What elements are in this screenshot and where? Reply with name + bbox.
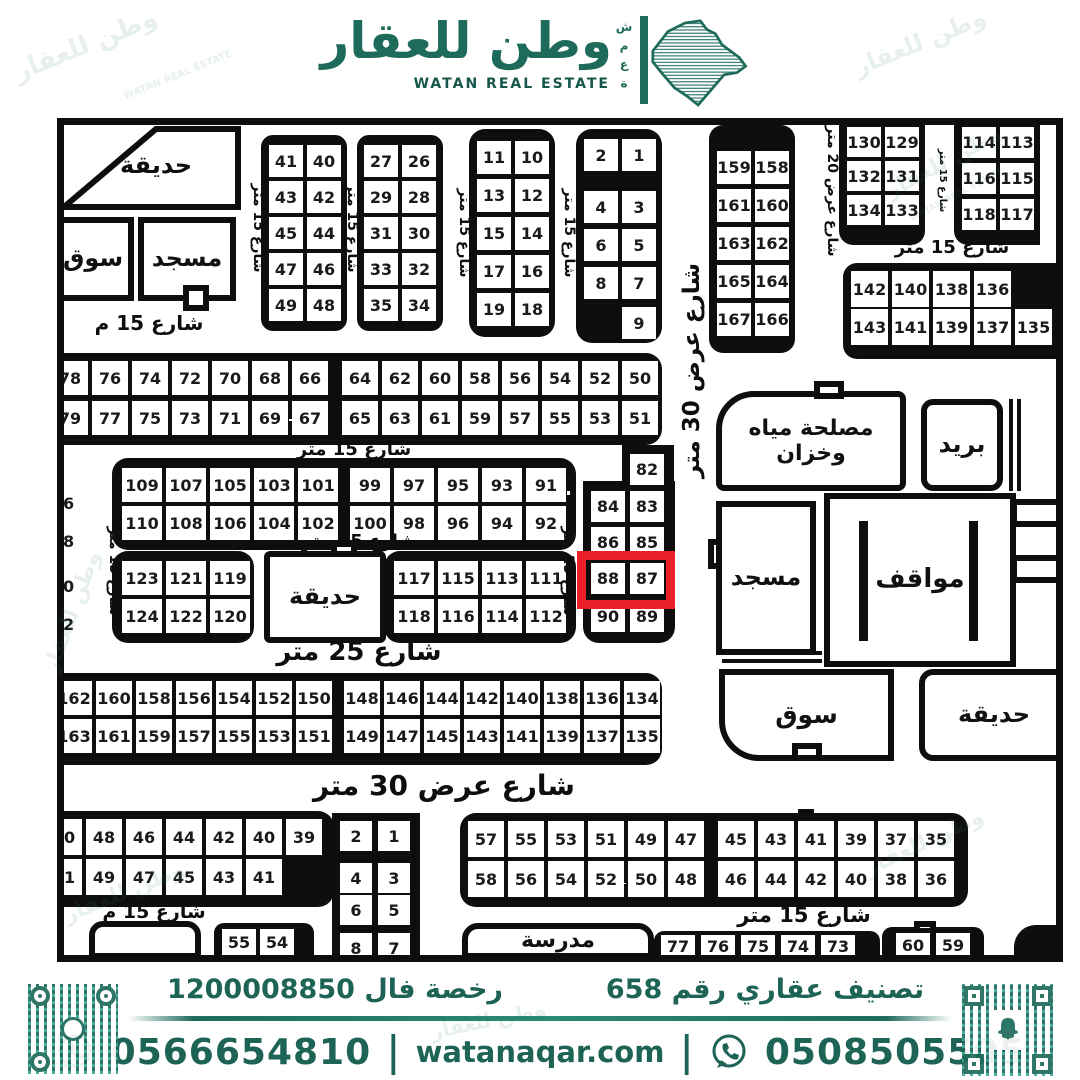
- plot-118[interactable]: 118: [394, 599, 434, 633]
- plot-44[interactable]: 44: [758, 861, 794, 897]
- plot-62[interactable]: 62: [382, 361, 418, 395]
- plot-61[interactable]: 61: [422, 401, 458, 435]
- plot-41[interactable]: 41: [246, 859, 282, 895]
- street-label: شارع 15 متر: [250, 148, 266, 308]
- plot-48[interactable]: 48: [668, 861, 704, 897]
- plot-158[interactable]: 158: [755, 151, 789, 184]
- plot-165[interactable]: 165: [717, 265, 751, 298]
- plot-47[interactable]: 47: [269, 253, 303, 285]
- qr-finder-icon: [964, 1054, 984, 1074]
- plot-40[interactable]: 40: [307, 145, 341, 177]
- market-block-topleft-label: سوق: [64, 245, 123, 273]
- plot-107[interactable]: 107: [166, 468, 206, 502]
- brand-letter: ة: [620, 74, 627, 93]
- plot-31[interactable]: 31: [364, 217, 398, 249]
- plot-52[interactable]: 52: [588, 861, 624, 897]
- plot-72[interactable]: 72: [172, 361, 208, 395]
- street-label: شارع 25 متر: [234, 637, 484, 667]
- plot-94[interactable]: 94: [482, 506, 522, 540]
- qr-finder-icon: [964, 986, 984, 1006]
- plot-155[interactable]: 155: [216, 719, 252, 753]
- plot-53[interactable]: 53: [548, 821, 584, 857]
- plot-40[interactable]: 40: [246, 819, 282, 855]
- street-label: شارع 15 متر: [456, 153, 472, 313]
- plot-13[interactable]: 13: [477, 179, 511, 212]
- plot-142[interactable]: 142: [851, 271, 888, 307]
- edge-fragment: [1011, 555, 1056, 583]
- plot-36[interactable]: 36: [918, 861, 954, 897]
- plot-49[interactable]: 49: [269, 289, 303, 321]
- plot-139[interactable]: 139: [933, 309, 970, 345]
- plot-12[interactable]: 12: [515, 179, 549, 212]
- plot-147[interactable]: 147: [384, 719, 420, 753]
- notch: [814, 381, 844, 399]
- plot-122[interactable]: 122: [166, 599, 206, 633]
- line-fragment: [722, 659, 822, 663]
- plot-70[interactable]: 70: [212, 361, 248, 395]
- plot-44[interactable]: 44: [166, 819, 202, 855]
- plot-93[interactable]: 93: [482, 468, 522, 502]
- plot-50[interactable]: 50: [622, 361, 658, 395]
- plot-32[interactable]: 32: [64, 609, 78, 639]
- plot-4[interactable]: 4: [340, 863, 372, 893]
- plot-153[interactable]: 153: [256, 719, 292, 753]
- plot-110[interactable]: 110: [122, 506, 162, 540]
- plot-74[interactable]: 74: [781, 935, 815, 955]
- plot-83[interactable]: 83: [630, 491, 664, 522]
- street-label: شارع 15 متر: [106, 491, 122, 651]
- plot-38[interactable]: 38: [878, 861, 914, 897]
- plot-116[interactable]: 116: [438, 599, 478, 633]
- plot-37[interactable]: 37: [878, 821, 914, 857]
- plot-140[interactable]: 140: [892, 271, 929, 307]
- street-label: شارع 15 متر: [937, 125, 948, 253]
- plot-54[interactable]: 54: [542, 361, 578, 395]
- plot-14[interactable]: 14: [515, 217, 549, 250]
- plot-121[interactable]: 121: [166, 561, 206, 595]
- plot-117[interactable]: 117: [394, 561, 434, 595]
- plot-29[interactable]: 29: [364, 181, 398, 213]
- street-label: شارع 15 متر: [704, 903, 904, 927]
- plot-144[interactable]: 144: [424, 681, 460, 715]
- water-utility-block-label: وخزان: [776, 441, 846, 466]
- plot-135[interactable]: 135: [624, 719, 660, 753]
- post-office-block-label: بريد: [939, 431, 986, 459]
- plot-108[interactable]: 108: [166, 506, 206, 540]
- plot-137[interactable]: 137: [584, 719, 620, 753]
- plot-46[interactable]: 46: [126, 819, 162, 855]
- plot-52[interactable]: 52: [582, 361, 618, 395]
- plot-54[interactable]: 54: [548, 861, 584, 897]
- plot-133[interactable]: 133: [885, 195, 919, 225]
- plot-32[interactable]: 32: [402, 253, 436, 285]
- whatsapp-icon: [709, 1032, 749, 1072]
- plot-130[interactable]: 130: [847, 127, 881, 157]
- plot-58[interactable]: 58: [468, 861, 504, 897]
- mosque-block-right-label: مسجد: [731, 564, 801, 592]
- plot-56[interactable]: 56: [502, 361, 538, 395]
- plot-141[interactable]: 141: [892, 309, 929, 345]
- plot-138[interactable]: 138: [544, 681, 580, 715]
- plot-42[interactable]: 42: [798, 861, 834, 897]
- qr-finder-icon: [30, 986, 50, 1006]
- plot-3[interactable]: 3: [378, 863, 410, 893]
- plot-49[interactable]: 49: [628, 821, 664, 857]
- notch: [183, 285, 209, 311]
- plot-75[interactable]: 75: [741, 935, 775, 955]
- plot-map: سوقمسجدمصلحة مياهوخزانبريدمسجدمواقفسوقحد…: [57, 118, 1063, 962]
- brand-name-arabic: وطن للعقار: [320, 14, 612, 69]
- footer-divider: [128, 1016, 952, 1021]
- plot-143[interactable]: 143: [464, 719, 500, 753]
- edge-fragment: [1011, 499, 1056, 527]
- garden-block-right-label: حديقة: [958, 701, 1030, 729]
- plot-113[interactable]: 113: [1000, 127, 1034, 158]
- plot-9[interactable]: 9: [622, 307, 656, 339]
- plot-8[interactable]: 8: [340, 933, 372, 955]
- plot-7[interactable]: 7: [378, 933, 410, 955]
- plot-19[interactable]: 19: [477, 293, 511, 326]
- qr-finder-icon: [1032, 986, 1052, 1006]
- plot-99[interactable]: 99: [350, 468, 390, 502]
- plot-149[interactable]: 149: [344, 719, 380, 753]
- plot-53[interactable]: 53: [582, 401, 618, 435]
- plot-33[interactable]: 33: [364, 253, 398, 285]
- plot-157[interactable]: 157: [176, 719, 212, 753]
- plot-2[interactable]: 2: [584, 139, 618, 171]
- plot-60[interactable]: 60: [896, 933, 930, 955]
- street-label: حديقة: [86, 151, 226, 179]
- street-label: شارع 15 متر: [852, 237, 1052, 258]
- plot-map-canvas: سوقمسجدمصلحة مياهوخزانبريدمسجدمواقفسوقحد…: [64, 125, 1056, 955]
- plot-117[interactable]: 117: [1000, 199, 1034, 230]
- street-label: شارع 15 متر: [561, 153, 577, 313]
- street-label: شارع عرض 30 متر: [224, 769, 664, 802]
- plot-76[interactable]: 76: [92, 361, 128, 395]
- plot-11[interactable]: 11: [477, 141, 511, 174]
- plot-28[interactable]: 28: [64, 526, 78, 556]
- brand-letter: ش: [616, 18, 633, 37]
- mosque-block-topleft-label: مسجد: [152, 245, 222, 273]
- plot-39[interactable]: 39: [838, 821, 874, 857]
- plot-58[interactable]: 58: [462, 361, 498, 395]
- plot-156[interactable]: 156: [176, 681, 212, 715]
- plot-26[interactable]: 26: [64, 488, 78, 518]
- plot-138[interactable]: 138: [933, 271, 970, 307]
- plot-163[interactable]: 163: [717, 227, 751, 260]
- street-label: شارع عرض 30 متر: [679, 263, 705, 463]
- plot-150[interactable]: 150: [296, 681, 332, 715]
- plot-163[interactable]: 163: [64, 719, 92, 753]
- plot-42[interactable]: 42: [206, 819, 242, 855]
- garden-block-right: حديقة: [919, 669, 1056, 761]
- plot-64[interactable]: 64: [342, 361, 378, 395]
- phone-number-left[interactable]: 0566654810: [111, 1032, 372, 1073]
- plot-63[interactable]: 63: [382, 401, 418, 435]
- plot-145[interactable]: 145: [424, 719, 460, 753]
- plot-7[interactable]: 7: [622, 267, 656, 299]
- plot-27[interactable]: 27: [364, 145, 398, 177]
- plot-134[interactable]: 134: [847, 195, 881, 225]
- plot-106[interactable]: 106: [210, 506, 250, 540]
- plot-66[interactable]: 66: [292, 361, 328, 395]
- plot-57[interactable]: 57: [502, 401, 538, 435]
- plot-74[interactable]: 74: [132, 361, 168, 395]
- parking-block: مواقف: [824, 493, 1016, 667]
- plot-113[interactable]: 113: [482, 561, 522, 595]
- plot-55[interactable]: 55: [508, 821, 544, 857]
- plot-46[interactable]: 46: [307, 253, 341, 285]
- plot-43[interactable]: 43: [758, 821, 794, 857]
- plot-105[interactable]: 105: [210, 468, 250, 502]
- plot-6[interactable]: 6: [340, 895, 372, 925]
- parking-block-label: مواقف: [875, 565, 964, 595]
- plot-50[interactable]: 50: [64, 819, 82, 855]
- plot-161[interactable]: 161: [717, 189, 751, 222]
- plot-123[interactable]: 123: [122, 561, 162, 595]
- plot-73[interactable]: 73: [172, 401, 208, 435]
- plot-49[interactable]: 49: [86, 859, 122, 895]
- plot-3[interactable]: 3: [622, 191, 656, 223]
- plot-43[interactable]: 43: [269, 181, 303, 213]
- street-label: شارع 15 متر: [560, 491, 576, 651]
- plot-114[interactable]: 114: [482, 599, 522, 633]
- water-utility-block: مصلحة مياهوخزان: [716, 391, 906, 491]
- plot-76[interactable]: 76: [701, 935, 735, 955]
- plot-69[interactable]: 69: [252, 401, 288, 435]
- plot-143[interactable]: 143: [851, 309, 888, 345]
- fal-license-text: رخصة فال 1200008850: [150, 974, 520, 1005]
- plot-136[interactable]: 136: [974, 271, 1011, 307]
- snapchat-ghost-icon: [990, 1010, 1026, 1050]
- plot-159[interactable]: 159: [136, 719, 172, 753]
- plot-160[interactable]: 160: [755, 189, 789, 222]
- brand-letter: م: [620, 37, 629, 56]
- plot-35[interactable]: 35: [364, 289, 398, 321]
- qr-center-logo-icon: [61, 1017, 85, 1041]
- plot-137[interactable]: 137: [974, 309, 1011, 345]
- plot-162[interactable]: 162: [755, 227, 789, 260]
- plot-55[interactable]: 55: [542, 401, 578, 435]
- plot-35[interactable]: 35: [918, 821, 954, 857]
- qr-finder-icon: [30, 1052, 50, 1072]
- plot-57[interactable]: 57: [468, 821, 504, 857]
- brand-letter: ع: [620, 55, 628, 74]
- plot-47[interactable]: 47: [668, 821, 704, 857]
- brand-logo: وطن للعقار WATAN REAL ESTATE ش م ع ة: [320, 8, 760, 112]
- plot-44[interactable]: 44: [307, 217, 341, 249]
- street-label: شارع عرض 20 متر: [824, 125, 840, 276]
- plot-43[interactable]: 43: [206, 859, 242, 895]
- plot-167[interactable]: 167: [717, 303, 751, 336]
- plot-77[interactable]: 77: [92, 401, 128, 435]
- plot-39[interactable]: 39: [286, 819, 322, 855]
- plot-56[interactable]: 56: [508, 861, 544, 897]
- plot-142[interactable]: 142: [464, 681, 500, 715]
- plot-135[interactable]: 135: [1015, 309, 1052, 345]
- plot-124[interactable]: 124: [122, 599, 162, 633]
- plot-40[interactable]: 40: [838, 861, 874, 897]
- street-label: شارع 15 متر: [249, 439, 459, 460]
- qr-finder-icon: [96, 986, 116, 1006]
- plot-159[interactable]: 159: [717, 151, 751, 184]
- plot-158[interactable]: 158: [136, 681, 172, 715]
- plot-54[interactable]: 54: [260, 929, 294, 955]
- school-block: مدرسة: [462, 923, 654, 955]
- plot-10[interactable]: 10: [515, 141, 549, 174]
- plot-166[interactable]: 166: [755, 303, 789, 336]
- plot-59[interactable]: 59: [936, 933, 970, 955]
- plot-134[interactable]: 134: [624, 681, 660, 715]
- plot-4[interactable]: 4: [584, 191, 618, 223]
- classification-text: تصنيف عقاري رقم 658: [590, 974, 940, 1005]
- plot-95[interactable]: 95: [438, 468, 478, 502]
- plot-45[interactable]: 45: [166, 859, 202, 895]
- plot-161[interactable]: 161: [96, 719, 132, 753]
- water-utility-block-label: مصلحة مياه: [749, 416, 874, 441]
- cut-block: [89, 921, 201, 955]
- plot-129[interactable]: 129: [885, 127, 919, 157]
- market-block-right-label: سوق: [775, 701, 838, 730]
- plot-141[interactable]: 141: [504, 719, 540, 753]
- plot-75[interactable]: 75: [132, 401, 168, 435]
- plot-114[interactable]: 114: [962, 127, 996, 158]
- separator: |: [680, 1028, 692, 1076]
- plot-41[interactable]: 41: [269, 145, 303, 177]
- plot-140[interactable]: 140: [504, 681, 540, 715]
- plot-78[interactable]: 78: [64, 361, 88, 395]
- plot-118[interactable]: 118: [962, 199, 996, 230]
- street-label: شارع 15 متر: [254, 531, 464, 552]
- plot-17[interactable]: 17: [477, 255, 511, 288]
- garden-block-middle: حديقة: [264, 551, 386, 643]
- plot-84[interactable]: 84: [591, 491, 625, 522]
- street-label: شارع 15 متر: [344, 148, 360, 308]
- plot-151[interactable]: 151: [296, 719, 332, 753]
- plot-50[interactable]: 50: [628, 861, 664, 897]
- highlighted-plots-88-87[interactable]: [577, 551, 675, 609]
- plot-26[interactable]: 26: [402, 145, 436, 177]
- line-fragment: [859, 521, 868, 641]
- plot-136[interactable]: 136: [584, 681, 620, 715]
- plot-6[interactable]: 6: [584, 229, 618, 261]
- plot-41[interactable]: 41: [798, 821, 834, 857]
- plot-55[interactable]: 55: [222, 929, 256, 955]
- plot-116[interactable]: 116: [962, 163, 996, 194]
- plot-67[interactable]: 67: [292, 401, 328, 435]
- contact-row: 0566654810 | watanaqar.com | 0508505505: [120, 1026, 960, 1078]
- separator: |: [387, 1028, 399, 1076]
- market-block-topleft: سوق: [64, 217, 134, 301]
- plot-30[interactable]: 30: [402, 217, 436, 249]
- plot-65[interactable]: 65: [342, 401, 378, 435]
- plot-5[interactable]: 5: [622, 229, 656, 261]
- mosque-block-right: مسجد: [716, 501, 816, 655]
- line-fragment: [1017, 399, 1021, 491]
- plot-77[interactable]: 77: [661, 935, 695, 955]
- plot-51[interactable]: 51: [622, 401, 658, 435]
- plot-115[interactable]: 115: [1000, 163, 1034, 194]
- plot-82[interactable]: 82: [630, 454, 664, 485]
- real-estate-map-poster: { "brand": { "name_ar": "وطن للعقار", "n…: [0, 0, 1080, 1080]
- plot-115[interactable]: 115: [438, 561, 478, 595]
- plot-101[interactable]: 101: [298, 468, 338, 502]
- plot-73[interactable]: 73: [821, 935, 855, 955]
- plot-164[interactable]: 164: [755, 265, 789, 298]
- website-link[interactable]: watanaqar.com: [416, 1035, 665, 1069]
- qr-finder-icon: [1032, 1054, 1052, 1074]
- plot-28[interactable]: 28: [402, 181, 436, 213]
- garden-block-middle-label: حديقة: [289, 583, 361, 611]
- plot-154[interactable]: 154: [216, 681, 252, 715]
- plot-60[interactable]: 60: [422, 361, 458, 395]
- plot-1[interactable]: 1: [378, 821, 410, 851]
- plot-15[interactable]: 15: [477, 217, 511, 250]
- plot-34[interactable]: 34: [402, 289, 436, 321]
- plot-71[interactable]: 71: [212, 401, 248, 435]
- plot-1[interactable]: 1: [622, 139, 656, 171]
- plot-132[interactable]: 132: [847, 161, 881, 191]
- brand-name-english: WATAN REAL ESTATE: [414, 76, 610, 92]
- saudi-map-icon: [642, 12, 750, 116]
- plot-103[interactable]: 103: [254, 468, 294, 502]
- plot-119[interactable]: 119: [210, 561, 250, 595]
- plot-2[interactable]: 2: [340, 821, 372, 851]
- plot-16[interactable]: 16: [515, 255, 549, 288]
- qr-code-snapchat[interactable]: [962, 984, 1054, 1076]
- line-fragment: [722, 651, 822, 655]
- plot-42[interactable]: 42: [307, 181, 341, 213]
- post-office-block: بريد: [921, 399, 1003, 491]
- plot-45[interactable]: 45: [269, 217, 303, 249]
- plot-30[interactable]: 30: [64, 571, 78, 601]
- street-label: شارع 15 م: [79, 901, 229, 923]
- plot-139[interactable]: 139: [544, 719, 580, 753]
- plot-79[interactable]: 79: [64, 401, 88, 435]
- plot-162[interactable]: 162: [64, 681, 92, 715]
- plot-148[interactable]: 148: [344, 681, 380, 715]
- plot-48[interactable]: 48: [86, 819, 122, 855]
- plot-48[interactable]: 48: [307, 289, 341, 321]
- plot-47[interactable]: 47: [126, 859, 162, 895]
- plot-59[interactable]: 59: [462, 401, 498, 435]
- plot-51[interactable]: 51: [64, 859, 82, 895]
- plot-51[interactable]: 51: [588, 821, 624, 857]
- plot-5[interactable]: 5: [378, 895, 410, 925]
- plot-46[interactable]: 46: [718, 861, 754, 897]
- plot-8[interactable]: 8: [584, 267, 618, 299]
- plot-160[interactable]: 160: [96, 681, 132, 715]
- plot-109[interactable]: 109: [122, 468, 162, 502]
- plot-68[interactable]: 68: [252, 361, 288, 395]
- school-block-label: مدرسة: [521, 928, 595, 953]
- notch: [708, 539, 722, 569]
- notch: [792, 743, 822, 761]
- plot-18[interactable]: 18: [515, 293, 549, 326]
- qr-code-left[interactable]: [28, 984, 118, 1074]
- plot-152[interactable]: 152: [256, 681, 292, 715]
- plot-131[interactable]: 131: [885, 161, 919, 191]
- plot-146[interactable]: 146: [384, 681, 420, 715]
- plot-120[interactable]: 120: [210, 599, 250, 633]
- street-label: شارع 15 م: [84, 311, 214, 335]
- plot-97[interactable]: 97: [394, 468, 434, 502]
- header: وطن للعقار WATAN REAL ESTATE ش م ع ة: [0, 0, 1080, 118]
- notch: [798, 809, 814, 821]
- plot-45[interactable]: 45: [718, 821, 754, 857]
- footer: رخصة فال 1200008850 تصنيف عقاري رقم 658 …: [0, 962, 1080, 1080]
- line-fragment: [969, 521, 978, 641]
